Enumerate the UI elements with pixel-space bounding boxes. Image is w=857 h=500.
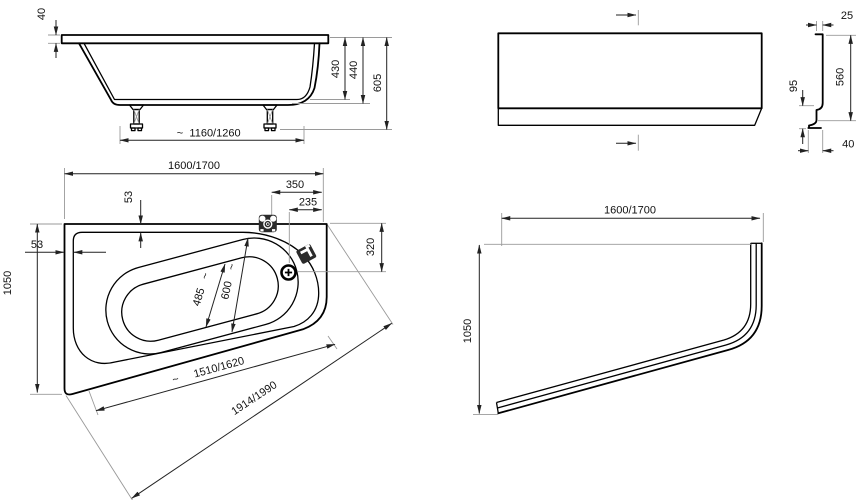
tub-rim-side — [62, 35, 329, 43]
dim-label-605: 605 — [372, 74, 384, 92]
dim-label-40: 40 — [36, 8, 48, 20]
dim-depths: 430 440 605 — [280, 38, 392, 130]
dim-plan-length: 1600/1700 — [65, 160, 324, 222]
apron-panel-face — [498, 33, 761, 108]
apron-curve-middle — [497, 243, 756, 408]
dim-label-53-top: 53 — [123, 191, 135, 203]
side-elevation-view: 40 ~ 1160/1260 430 440 605 — [36, 8, 392, 144]
dim-rim-thickness: 40 — [36, 8, 60, 58]
apron-curve-outer — [498, 243, 761, 413]
approx-wave: ~ — [226, 263, 239, 272]
bathtub-technical-drawing: 40 ~ 1160/1260 430 440 605 — [0, 0, 857, 500]
dim-label-350: 350 — [286, 179, 304, 191]
dim-label-25: 25 — [841, 10, 853, 22]
dim-label-apron-1050: 1050 — [462, 319, 474, 343]
apron-profile-section: 25 560 95 40 — [788, 10, 856, 153]
dim-label-235: 235 — [299, 197, 317, 209]
section-marker-top — [616, 10, 638, 25]
dim-label-320: 320 — [365, 238, 377, 256]
dim-label-600: 600 — [219, 280, 235, 300]
drawing-canvas: 40 ~ 1160/1260 430 440 605 — [0, 0, 857, 500]
dim-label-440: 440 — [348, 61, 360, 79]
tub-shell-inner — [84, 43, 315, 99]
plan-view: 1600/1700 350 235 53 53 — [2, 160, 393, 500]
tub-shell-outer — [79, 43, 320, 105]
dim-label-560: 560 — [834, 68, 846, 86]
dim-label-1914: 1914/1990 — [229, 379, 279, 418]
dim-label-plan-1600: 1600/1700 — [168, 160, 220, 172]
dim-label-40b: 40 — [842, 139, 854, 151]
approx-wave: ~ — [177, 128, 183, 140]
dim-apron-width: 1050 — [462, 244, 752, 414]
tub-leg-left — [130, 105, 144, 131]
approx-wave: ~ — [171, 373, 180, 386]
apron-front-view: 25 560 95 40 — [498, 10, 856, 153]
dim-label-1160-1260: 1160/1260 — [189, 128, 240, 140]
dim-rim-top: 53 — [123, 191, 141, 248]
approx-wave: ~ — [199, 271, 212, 281]
apron-plan-view: 1600/1700 1050 — [462, 205, 763, 415]
tap-icon — [259, 215, 277, 233]
dim-base-length: ~ 1160/1260 — [120, 126, 304, 144]
dim-label-95: 95 — [788, 80, 800, 92]
tub-leg-right — [263, 105, 277, 131]
dim-label-485: 485 — [191, 287, 208, 308]
dim-label-apron-1600: 1600/1700 — [604, 205, 656, 217]
section-marker-bottom — [616, 135, 638, 151]
apron-panel-plinth — [498, 108, 761, 125]
overflow-icon — [296, 244, 317, 265]
dim-apron-length: 1600/1700 — [502, 205, 764, 247]
dim-label-430: 430 — [330, 60, 342, 78]
dim-label-plan-1050: 1050 — [2, 271, 14, 295]
drain-icon — [282, 266, 296, 280]
